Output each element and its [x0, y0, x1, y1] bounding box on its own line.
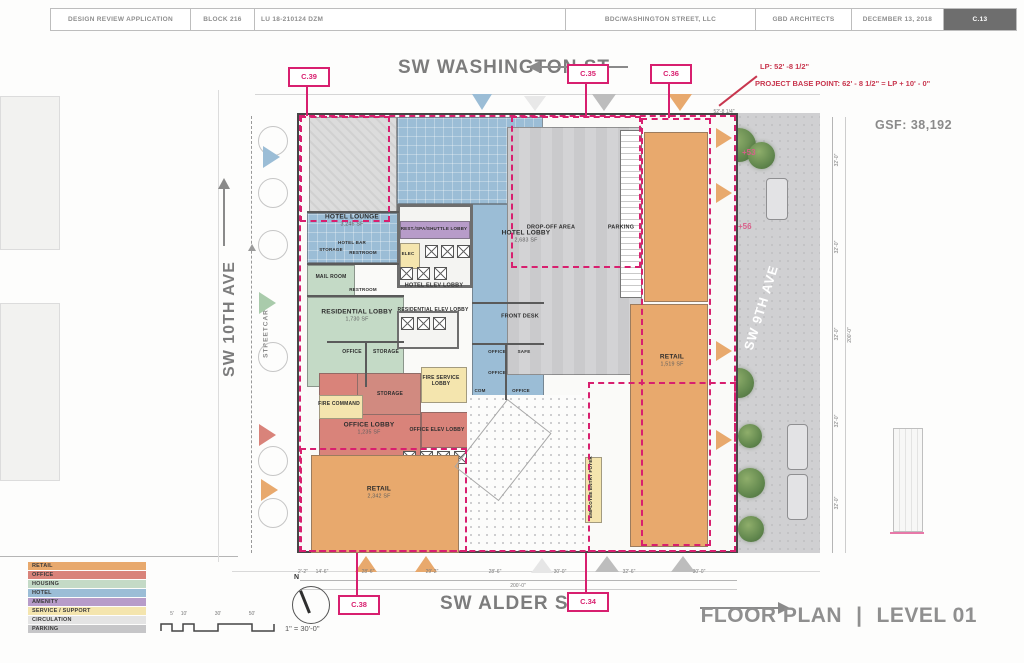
scale-mark: 5'	[170, 611, 174, 617]
header-case-number: LU 18-210124 DZM	[255, 9, 566, 30]
callout-c35: C.35	[567, 64, 609, 84]
tower-sketch	[893, 428, 923, 532]
header-application: DESIGN REVIEW APPLICATION	[51, 9, 191, 30]
spot-elevation: +53	[742, 148, 756, 157]
street-tree	[258, 342, 288, 372]
west-arrow-line	[223, 188, 225, 246]
legend-item: CIRCULATION	[28, 616, 146, 624]
header-architect: GBD ARCHITECTS	[756, 9, 852, 30]
callout-leader	[668, 81, 670, 118]
scale-mark: 10'	[181, 611, 188, 617]
detail-boundary-c39	[300, 116, 390, 222]
entry-marker-retail-icon	[716, 341, 732, 361]
dimension-line	[832, 117, 833, 553]
scale-mark: 50'	[249, 611, 256, 617]
callout-c36: C.36	[650, 64, 692, 84]
curb-line	[0, 556, 238, 557]
entry-marker-residential-icon	[259, 292, 276, 314]
scale-text: 1" = 30'-0"	[285, 624, 320, 633]
detail-boundary-c38	[300, 448, 467, 552]
dimension-text: 32'-0"	[834, 415, 840, 428]
title-bar: DESIGN REVIEW APPLICATION BLOCK 216 LU 1…	[50, 8, 1017, 31]
header-owner: BDC/WASHINGTON STREET, LLC	[566, 9, 756, 30]
legend-item: HOUSING	[28, 580, 146, 588]
entry-marker-retail-icon	[261, 479, 278, 501]
callout-leader	[306, 84, 308, 116]
sheet-title-separator: |	[856, 604, 862, 627]
dimension-text: 28'-6"	[362, 569, 375, 575]
entry-marker-icon	[595, 556, 619, 572]
streetcar-arrow-icon	[248, 244, 256, 251]
parked-car	[766, 178, 788, 220]
north-arrow-icon	[292, 586, 330, 624]
dimension-text: 28'-6"	[489, 569, 502, 575]
tower-sketch-base	[890, 532, 924, 534]
dimension-text: 29'-2"	[426, 569, 439, 575]
street-label-west: SW 10TH AVE	[221, 229, 239, 409]
entry-marker-retail-icon	[668, 94, 692, 111]
street-tree	[258, 498, 288, 528]
header-date: DECEMBER 13, 2018	[852, 9, 944, 30]
dimension-text: 14'-6"	[316, 569, 329, 575]
header-block: BLOCK 216	[191, 9, 255, 30]
annotation-base-point: PROJECT BASE POINT: 62' - 8 1/2" = LP + …	[755, 79, 930, 88]
dimension-line	[300, 589, 737, 590]
dimension-text: 32'-0"	[834, 328, 840, 341]
sheet-title-name: FLOOR PLAN	[701, 604, 843, 627]
entry-marker-retail-icon	[716, 183, 732, 203]
callout-leader	[356, 553, 358, 595]
entry-marker-icon	[524, 96, 546, 111]
parked-car	[787, 424, 808, 470]
tree	[738, 516, 764, 542]
entry-marker-parking-icon	[592, 94, 616, 111]
streetcar-track	[251, 116, 252, 553]
legend-item: PARKING	[28, 625, 146, 633]
context-building	[0, 303, 60, 481]
callout-c34: C.34	[567, 592, 609, 612]
scale-bar	[160, 618, 276, 634]
dimension-text: 32'-0"	[834, 241, 840, 254]
entry-marker-retail-icon	[716, 430, 732, 450]
legend-item: SERVICE / SUPPORT	[28, 607, 146, 615]
dimension-line	[845, 117, 846, 553]
legend-item: RETAIL	[28, 562, 146, 570]
annotation-lp: LP: 52' -8 1/2"	[760, 62, 809, 71]
spot-elevation: +56	[738, 222, 752, 231]
dimension-text: 32'-0"	[834, 497, 840, 510]
annotation-leader	[718, 75, 757, 106]
street-tree	[258, 230, 288, 260]
dimension-text: 32'-0"	[834, 154, 840, 167]
entry-marker-hotel-icon	[472, 94, 492, 110]
scale-mark: 30'	[215, 611, 222, 617]
callout-leader	[585, 553, 587, 592]
dimension-text: 32'-6"	[623, 569, 636, 575]
entry-marker-hotel-icon	[263, 146, 280, 168]
arrow-up-icon	[218, 178, 230, 189]
legend-item: OFFICE	[28, 571, 146, 579]
dimension-text: 30'-0"	[693, 569, 706, 575]
legend-item: HOTEL	[28, 589, 146, 597]
dimension-text: 200'-0"	[510, 583, 526, 589]
drawing-sheet: DESIGN REVIEW APPLICATION BLOCK 216 LU 1…	[0, 0, 1024, 663]
tree	[735, 468, 765, 498]
context-building	[0, 96, 60, 250]
arrow-left-icon	[528, 61, 540, 73]
dimension-text: 2'-2"	[298, 569, 308, 575]
detail-boundary-c34	[588, 382, 736, 552]
top-dimension: 52'-8 1/4"	[713, 109, 734, 115]
gsf-note: GSF: 38,192	[875, 118, 952, 132]
callout-c38: C.38	[338, 595, 380, 615]
sheet-title-level: LEVEL 01	[877, 604, 978, 627]
sheet-title: FLOOR PLAN|LEVEL 01	[694, 604, 984, 628]
entry-marker-retail-icon	[716, 128, 732, 148]
entry-marker-icon	[671, 556, 695, 572]
legend-item: AMENITY	[28, 598, 146, 606]
street-tree	[258, 446, 288, 476]
sheet-number: C.13	[944, 9, 1016, 30]
callout-leader	[585, 81, 587, 116]
street-label-south: SW ALDER ST	[440, 593, 581, 615]
tree	[738, 424, 762, 448]
entry-marker-office-icon	[259, 424, 276, 446]
dimension-text: 30'-0"	[554, 569, 567, 575]
curb-line	[218, 90, 219, 562]
north-label: N	[294, 574, 299, 581]
dimension-line	[300, 580, 737, 581]
callout-c39: C.39	[288, 67, 330, 87]
street-tree	[258, 178, 288, 208]
entry-marker-icon	[531, 558, 553, 573]
dimension-text: 200'-0"	[847, 327, 853, 343]
detail-boundary-c35	[511, 116, 641, 268]
parked-car	[787, 474, 808, 520]
